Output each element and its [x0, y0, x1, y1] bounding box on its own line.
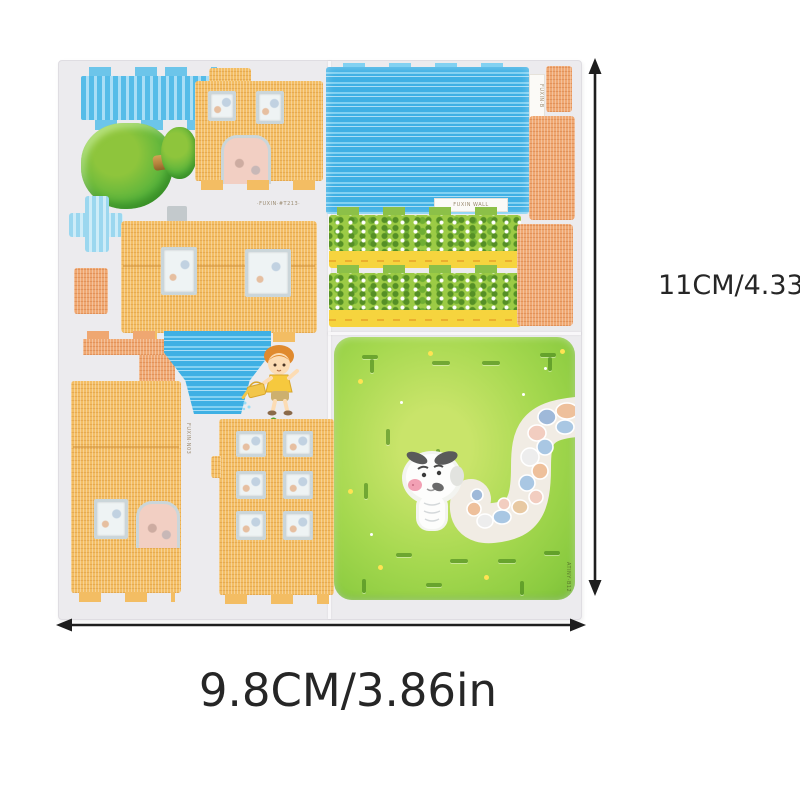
window	[94, 499, 128, 539]
width-dimension-arrow	[56, 615, 586, 635]
door-room	[221, 135, 271, 184]
cross-vertical	[85, 196, 109, 252]
piece-body	[83, 339, 178, 355]
window	[236, 431, 266, 457]
garden-base-board: ATINY·B12	[334, 337, 575, 600]
window	[236, 511, 266, 540]
panel-code-text: FUXIN·N03	[185, 423, 191, 454]
cow-sticker	[394, 445, 469, 535]
window	[208, 91, 236, 121]
tab-strip	[79, 592, 175, 602]
boy-watering-figure	[241, 343, 313, 429]
fold-line	[73, 446, 179, 448]
window	[236, 471, 266, 499]
hedge-bushes	[329, 215, 521, 251]
edge-code-text: FUXIN·B	[529, 74, 545, 118]
roof-body	[326, 67, 529, 214]
window	[161, 247, 197, 295]
tab-strip	[225, 594, 329, 604]
hedge-bushes	[329, 273, 521, 310]
door-arched	[136, 501, 180, 548]
sheet-code-text: ·FUXIN·#T213·	[257, 201, 300, 207]
window	[256, 91, 284, 124]
height-dimension-label: 11CM/4.33in	[658, 270, 800, 301]
small-tan-piece	[74, 268, 108, 314]
window	[283, 431, 313, 457]
tan-piece	[529, 116, 575, 220]
tan-piece	[546, 66, 572, 112]
window	[283, 471, 313, 499]
window	[283, 511, 313, 540]
width-dimension-label: 9.8CM/3.86in	[148, 664, 548, 717]
window	[245, 249, 291, 297]
tab-strip	[201, 180, 317, 190]
hedge-base-band	[329, 310, 521, 327]
panel-seam-horizontal	[328, 332, 581, 335]
chimney-piece	[167, 206, 187, 222]
side-tab	[211, 456, 221, 478]
height-dimension-arrow	[585, 58, 605, 596]
tree-canopy-small	[161, 127, 197, 179]
board-code-text: ATINY·B12	[565, 562, 571, 592]
wall-body	[71, 381, 181, 593]
puzzle-sheet: ·FUXIN·#T213·	[58, 60, 582, 620]
tan-piece	[517, 224, 573, 326]
